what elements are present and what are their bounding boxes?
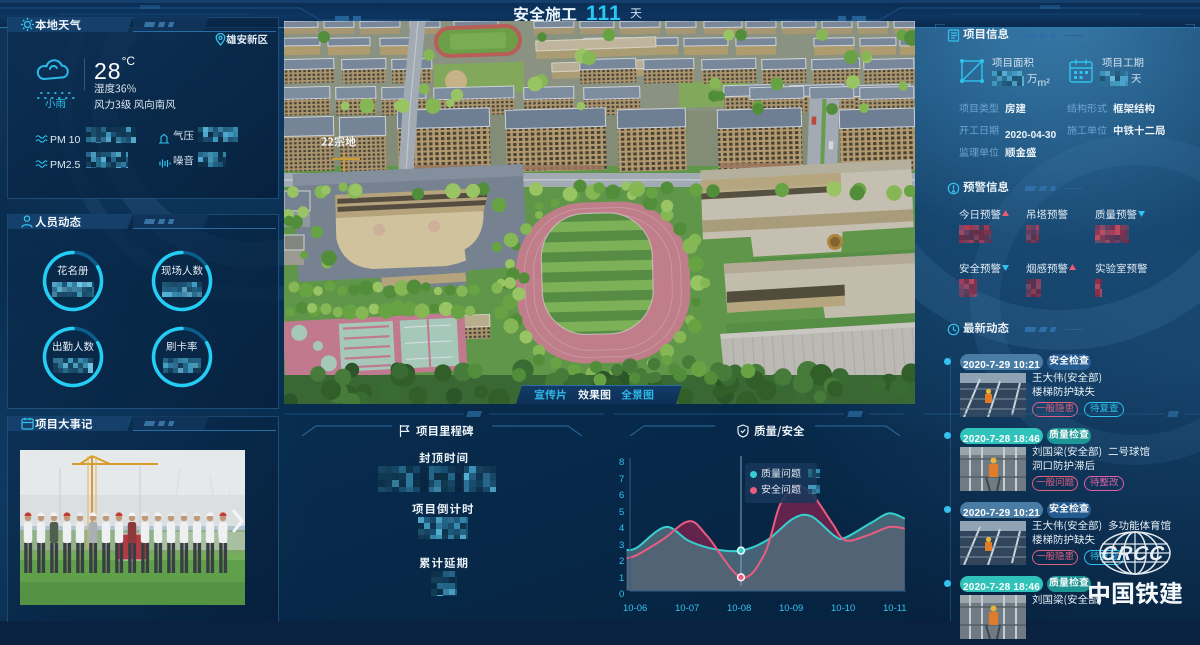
svg-text:CRCC: CRCC — [1100, 543, 1166, 565]
